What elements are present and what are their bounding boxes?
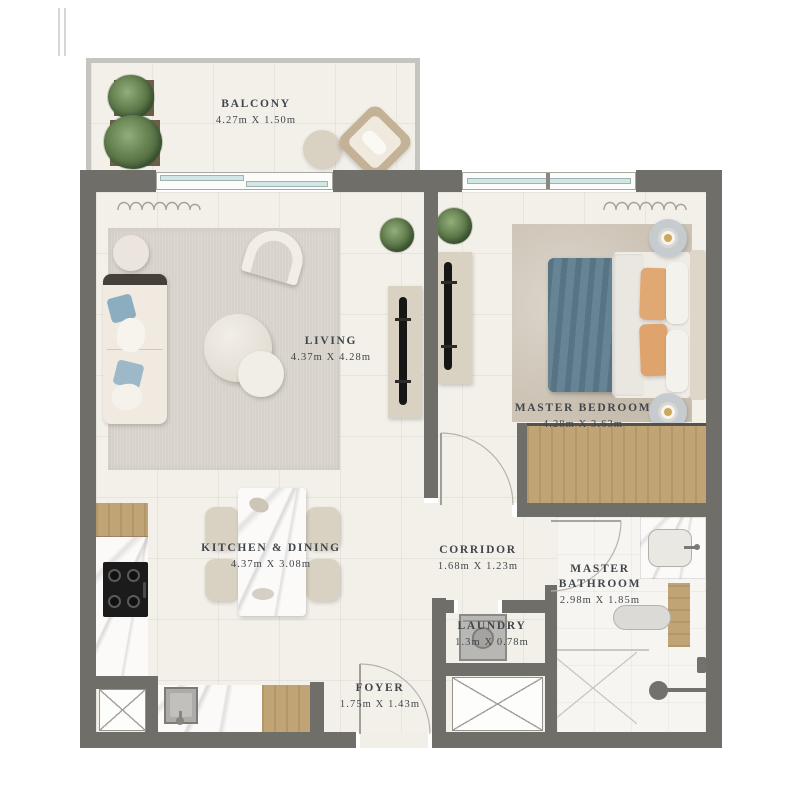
wall-shaft-side	[145, 688, 158, 732]
burner	[108, 595, 121, 608]
wall-bedroom-bottom	[517, 503, 706, 517]
bed-headboard	[690, 250, 706, 400]
kitchen-cabinet-base	[262, 685, 310, 732]
bed-pillow-accent	[639, 268, 669, 321]
sink-faucet-base	[176, 717, 184, 725]
bed-pillow-white	[666, 262, 688, 324]
sofa	[103, 274, 167, 424]
bed-sheet-fold	[612, 254, 644, 396]
wall-bottom-a	[80, 732, 356, 748]
tv-bracket	[395, 380, 411, 383]
room-label-kitchen-dining: KITCHEN & DINING 4.37m X 3.08m	[201, 541, 341, 572]
service-shaft	[452, 677, 543, 731]
living-plant	[380, 218, 414, 252]
wardrobe	[527, 423, 706, 503]
wall-right	[706, 170, 722, 748]
door-jamb	[424, 498, 438, 503]
wall-bottom-b	[432, 732, 722, 748]
toilet	[613, 605, 671, 630]
shower-floor	[549, 652, 637, 724]
wall-living-bedroom-divider	[424, 192, 438, 503]
table-decor	[252, 588, 274, 600]
cooktop-knobs	[143, 582, 146, 598]
tv-screen	[444, 262, 452, 370]
lamp-bulb	[664, 408, 672, 416]
balcony-slider-glass	[246, 181, 328, 187]
bedroom-plant	[436, 208, 472, 244]
curtain-symbol	[602, 197, 688, 213]
bed-pillow-white	[666, 330, 688, 392]
room-dims: 1.75m X 1.43m	[340, 698, 420, 712]
bed-blanket	[548, 258, 616, 392]
coffee-table-small	[238, 351, 284, 397]
wall-top-b	[333, 170, 462, 192]
tv-bracket	[441, 345, 457, 348]
burner	[127, 569, 140, 582]
balcony-wall-right	[415, 58, 420, 172]
adjacent-wall-line	[58, 8, 60, 56]
balcony-table	[303, 130, 341, 168]
balcony-slider-glass	[160, 175, 244, 181]
room-name: KITCHEN & DINING	[201, 541, 341, 556]
cooktop	[103, 562, 148, 617]
room-label-laundry: LAUNDRY 1.3m X 0.78m	[455, 619, 529, 650]
service-shaft	[99, 689, 146, 731]
balcony-plant	[104, 115, 162, 169]
kitchen-cabinet-tall	[96, 503, 148, 537]
shower-arm	[666, 688, 706, 692]
adjacent-wall-line	[64, 8, 66, 56]
wall-foyer-left	[310, 682, 324, 732]
door-jamb	[454, 600, 458, 613]
room-label-master-bedroom: MASTER BEDROOM 4.28m X 3.63m	[515, 401, 652, 432]
room-dims: 4.37m X 4.28m	[291, 351, 371, 365]
lamp-bulb	[664, 234, 672, 242]
window-mullion	[546, 173, 550, 189]
shower-threshold	[557, 649, 649, 651]
bedroom-door	[439, 431, 515, 507]
sofa-back-edge	[103, 274, 167, 285]
room-name: CORRIDOR	[438, 543, 518, 558]
room-name: LIVING	[291, 334, 371, 349]
room-dims: 4.28m X 3.63m	[515, 418, 652, 432]
balcony-plant	[108, 75, 154, 119]
room-label-living: LIVING 4.37m X 4.28m	[291, 334, 371, 365]
side-table	[113, 235, 149, 271]
balcony-wall-top	[86, 58, 420, 63]
room-label-master-bathroom: MASTER BATHROOM 2.98m X 1.85m	[544, 562, 656, 608]
room-name: MASTER BEDROOM	[515, 401, 652, 416]
vanity-faucet-base	[694, 544, 700, 550]
room-name: BALCONY	[216, 97, 296, 112]
wall-laundry-top-b	[502, 600, 545, 613]
tv-bracket	[395, 318, 411, 321]
room-label-corridor: CORRIDOR 1.68m X 1.23m	[438, 543, 518, 574]
room-name: MASTER BATHROOM	[544, 562, 656, 592]
wall-laundry-bottom	[432, 663, 557, 676]
bed-pillow-accent	[639, 324, 669, 377]
wall-left	[80, 170, 96, 748]
room-label-balcony: BALCONY 4.27m X 1.50m	[216, 97, 296, 128]
bathroom-wood-partition	[668, 583, 690, 647]
door-jamb	[498, 600, 502, 613]
shower-control	[697, 657, 706, 673]
room-dims: 4.37m X 3.08m	[201, 558, 341, 572]
curtain-symbol	[116, 197, 202, 213]
room-dims: 1.3m X 0.78m	[455, 636, 529, 650]
wall-wardrobe-edge	[517, 423, 527, 505]
tv-bracket	[441, 281, 457, 284]
room-name: FOYER	[340, 681, 420, 696]
room-dims: 4.27m X 1.50m	[216, 114, 296, 128]
balcony-wall-left	[86, 58, 91, 172]
burner	[108, 569, 121, 582]
room-name: LAUNDRY	[455, 619, 529, 634]
burner	[127, 595, 140, 608]
room-label-foyer: FOYER 1.75m X 1.43m	[340, 681, 420, 712]
floor-plan: BALCONY 4.27m X 1.50m LIVING 4.37m X 4.2…	[0, 0, 800, 800]
tv-screen	[399, 297, 407, 405]
room-dims: 1.68m X 1.23m	[438, 560, 518, 574]
room-dims: 2.98m X 1.85m	[544, 594, 656, 608]
